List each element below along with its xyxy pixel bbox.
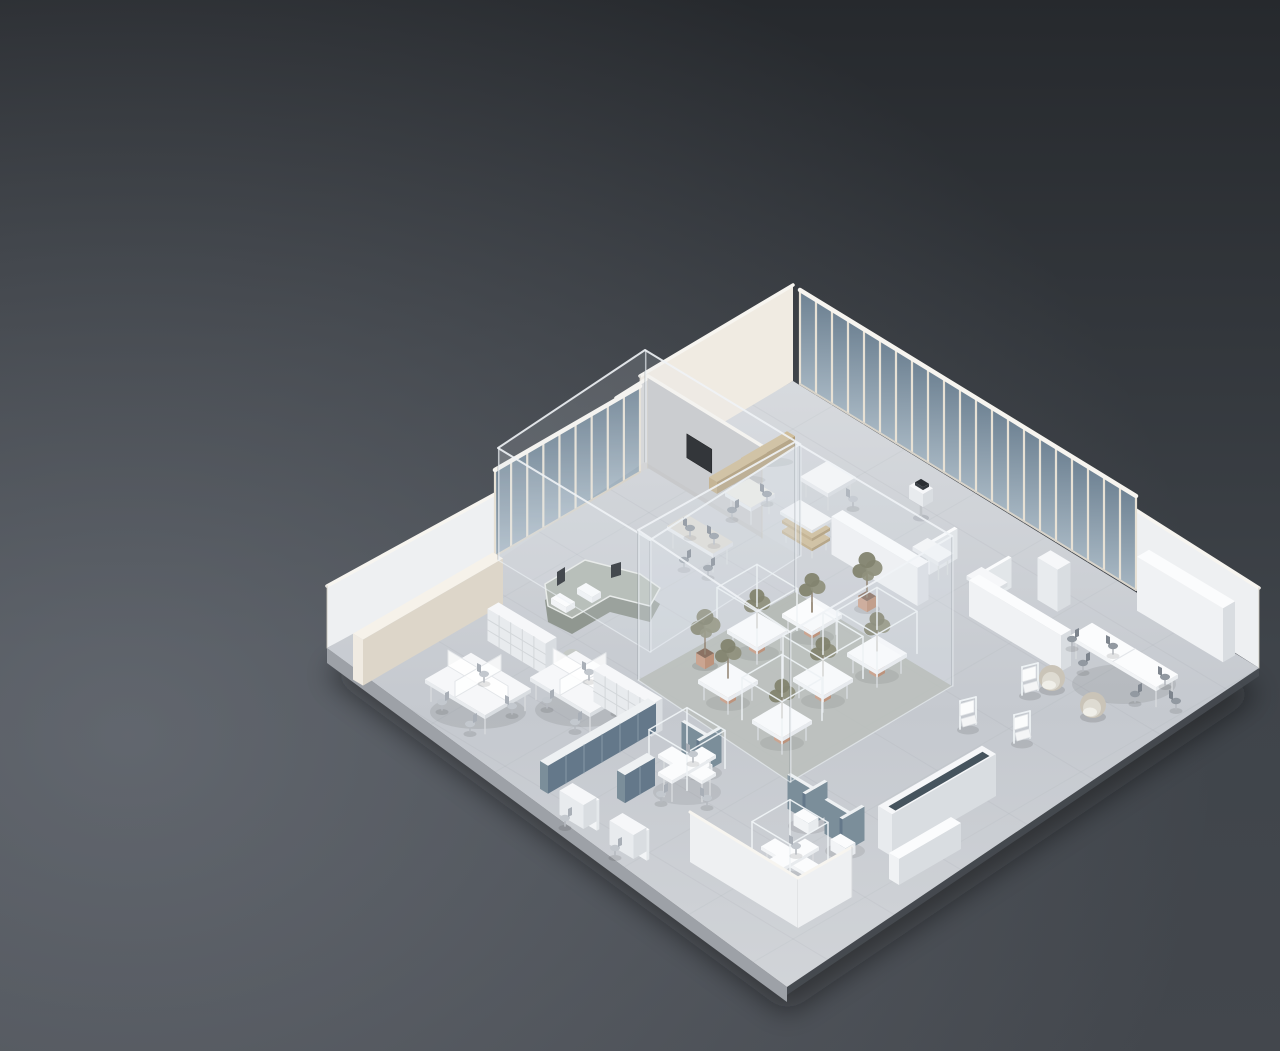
podChair bbox=[1080, 692, 1106, 723]
office-floorplan-render bbox=[0, 0, 1280, 1051]
isometric-office-scene bbox=[0, 0, 1280, 1051]
podChair bbox=[1039, 665, 1065, 696]
cabinet bbox=[1038, 550, 1071, 612]
